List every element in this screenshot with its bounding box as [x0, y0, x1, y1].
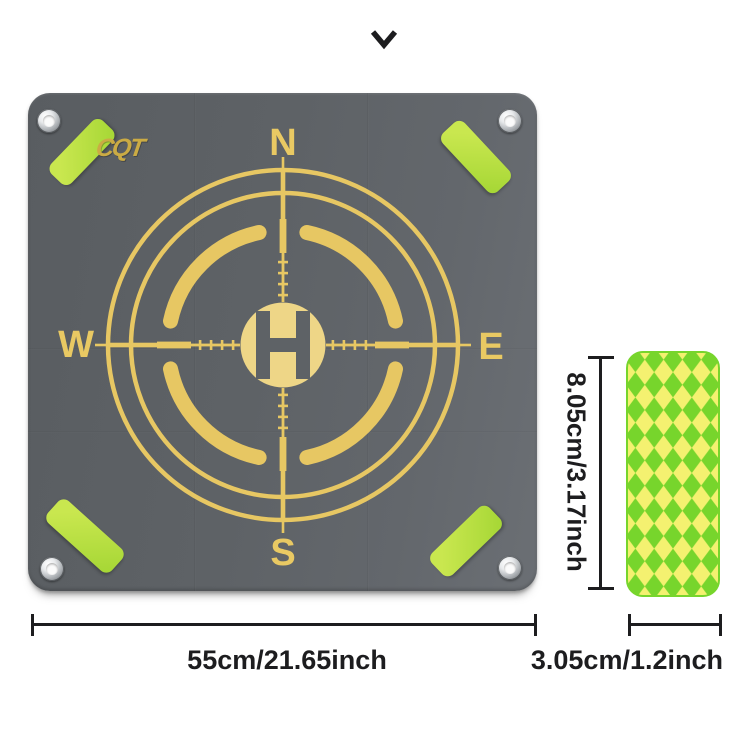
dimension-cap: [628, 614, 631, 636]
landing-pad: CQT: [28, 93, 537, 591]
compass-letter-w: W: [58, 324, 94, 366]
dimension-cap: [534, 614, 537, 636]
dimension-cap: [31, 614, 34, 636]
compass-letter-s: S: [270, 532, 295, 574]
product-image-page: { "window": { "chevron_icon": "chevron-d…: [0, 0, 750, 750]
strip-width-label: 3.05cm/1.2inch: [531, 645, 723, 676]
compass-letter-e: E: [478, 326, 503, 368]
compass-helipad-graphic: N E S W: [28, 93, 537, 591]
dimension-cap: [719, 614, 722, 636]
dimension-line-pad-width: [31, 623, 537, 626]
strip-height-label: 8.05cm/3.17inch: [561, 372, 592, 571]
dimension-cap: [588, 587, 614, 590]
dimension-line-strip-height: [599, 356, 602, 590]
accessory-strip-diamond-pattern-icon: [626, 351, 720, 597]
compass-letter-n: N: [269, 122, 296, 164]
chevron-down-icon[interactable]: [369, 27, 399, 53]
pad-width-label: 55cm/21.65inch: [187, 645, 387, 676]
dimension-line-strip-width: [628, 623, 722, 626]
dimension-cap: [588, 356, 614, 359]
